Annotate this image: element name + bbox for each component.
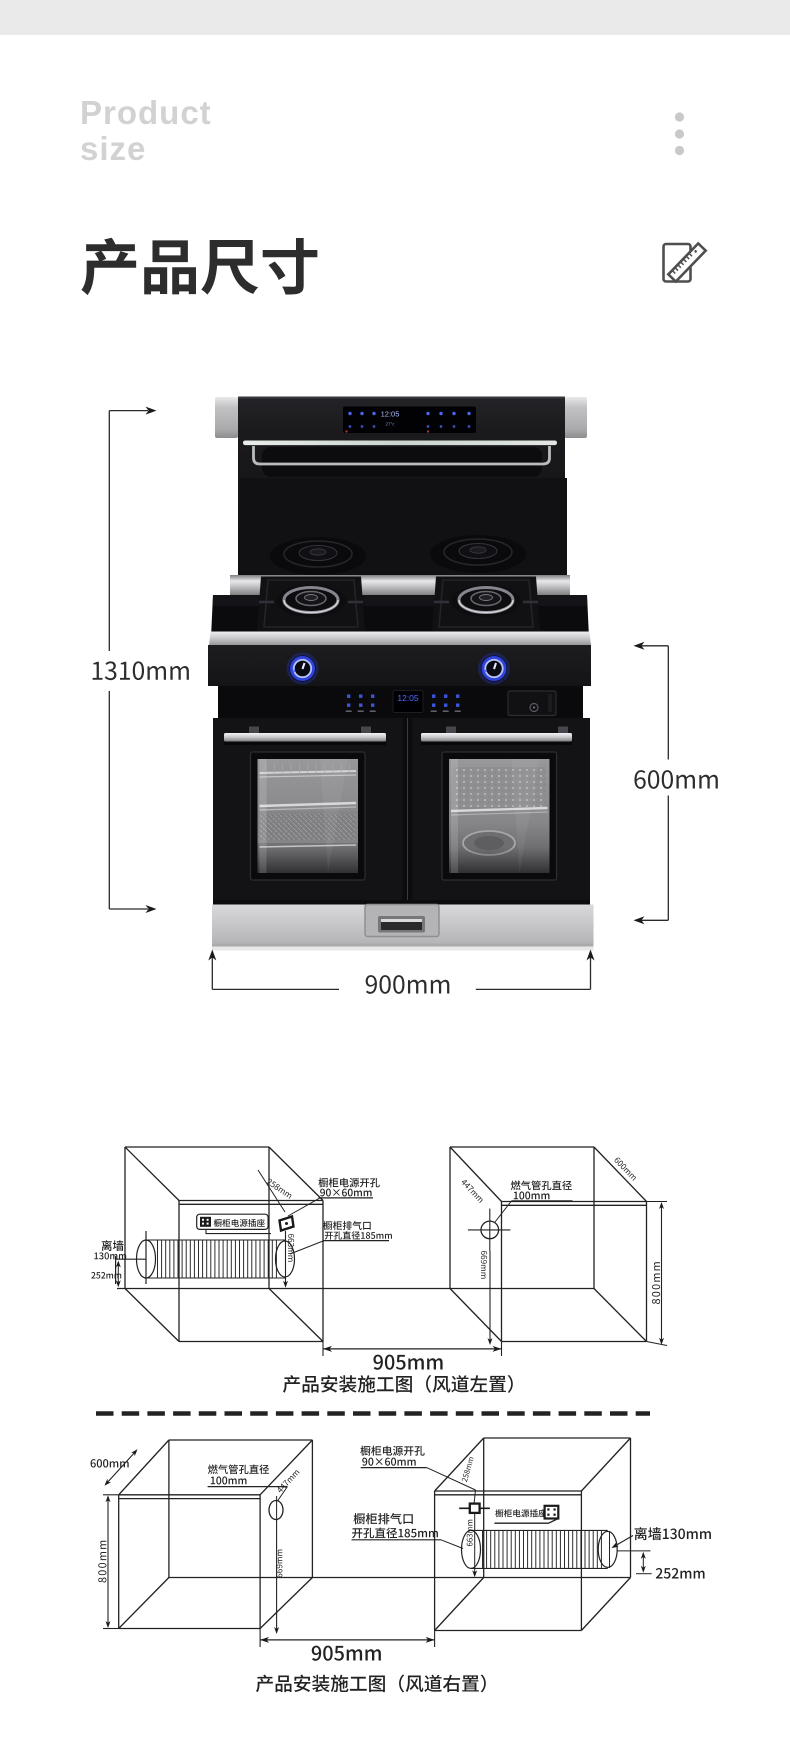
svg-text:12:05: 12:05 <box>381 410 400 419</box>
svg-text:Product: Product <box>80 94 212 131</box>
svg-text:size: size <box>80 130 146 167</box>
svg-text:27°c: 27°c <box>385 422 395 427</box>
svg-text:12:05: 12:05 <box>397 693 419 703</box>
